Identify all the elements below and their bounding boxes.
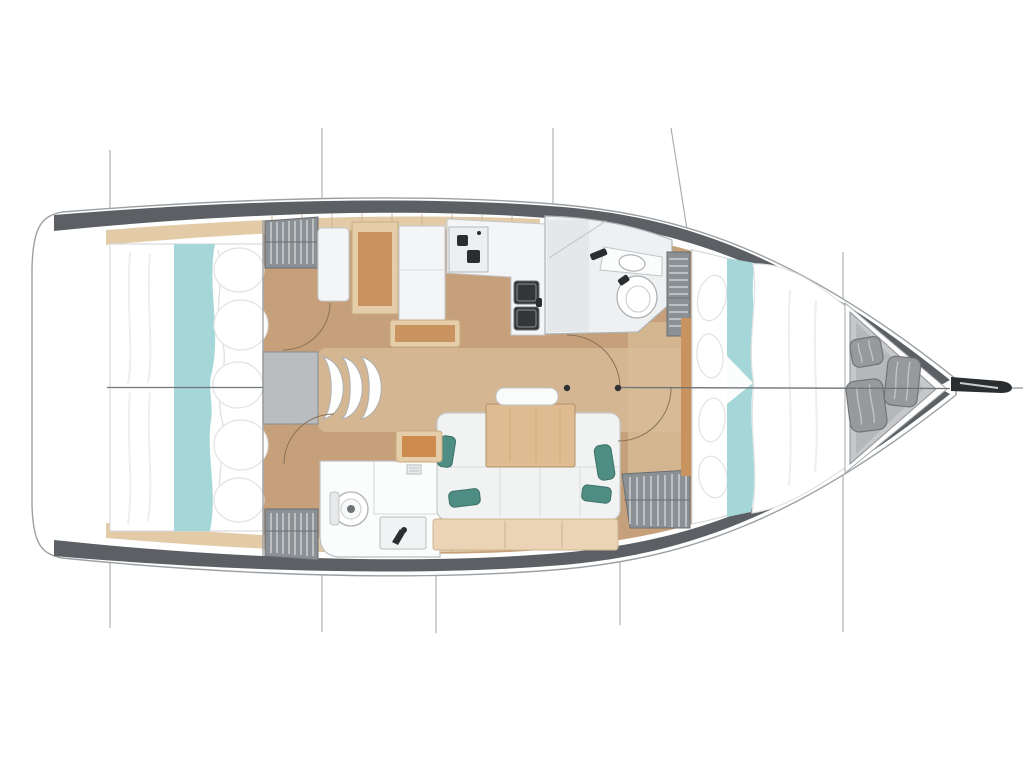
saloon-bench (496, 388, 558, 405)
teal-cushion (581, 484, 612, 503)
teal-cushion (448, 488, 481, 508)
galley-cabinet (399, 226, 445, 322)
fender (883, 355, 921, 407)
door-hinge (615, 385, 621, 391)
vent (407, 465, 421, 474)
pillow (214, 300, 268, 350)
louvered-locker-starboard-aft (265, 509, 318, 560)
pillow (213, 362, 263, 408)
forward-head (545, 216, 672, 334)
door-hinge (564, 385, 570, 391)
stove-burner (467, 250, 480, 263)
galley-faucet (536, 298, 542, 307)
pillow (214, 420, 268, 470)
headboard-shelf (681, 318, 692, 476)
fender (849, 335, 884, 368)
louvered-locker-starboard-forward (622, 470, 690, 528)
yacht-floor-plan (0, 0, 1024, 768)
engine-box (263, 352, 318, 424)
pillow (214, 478, 264, 522)
nav-seat (318, 228, 349, 301)
stove-burner (457, 235, 468, 246)
louvered-locker-port-aft (265, 217, 318, 268)
stove (449, 227, 488, 272)
toilet-backrest (330, 492, 339, 525)
saloon-table (486, 404, 575, 467)
fender (845, 378, 888, 433)
bowsprit (951, 377, 1023, 393)
pillow (214, 248, 264, 292)
settee-front-trim (433, 519, 618, 550)
floor-plan-page (0, 0, 1024, 768)
aft-head (320, 461, 440, 557)
forward-cabin (681, 249, 845, 524)
